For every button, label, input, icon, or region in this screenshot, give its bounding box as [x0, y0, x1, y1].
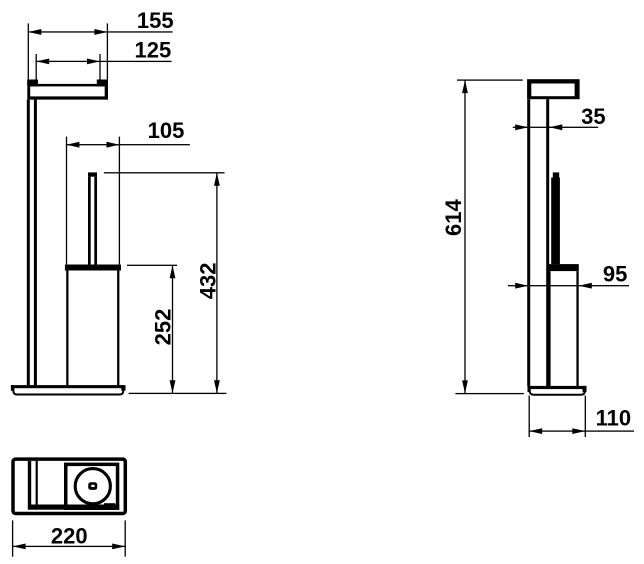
- svg-text:95: 95: [603, 261, 627, 286]
- svg-text:614: 614: [441, 199, 466, 236]
- svg-text:432: 432: [195, 262, 220, 299]
- svg-text:110: 110: [596, 406, 632, 431]
- svg-text:35: 35: [581, 104, 605, 129]
- svg-text:155: 155: [137, 8, 174, 33]
- svg-text:105: 105: [148, 118, 185, 143]
- svg-text:125: 125: [135, 38, 172, 63]
- svg-text:220: 220: [51, 524, 88, 549]
- svg-text:252: 252: [151, 309, 176, 346]
